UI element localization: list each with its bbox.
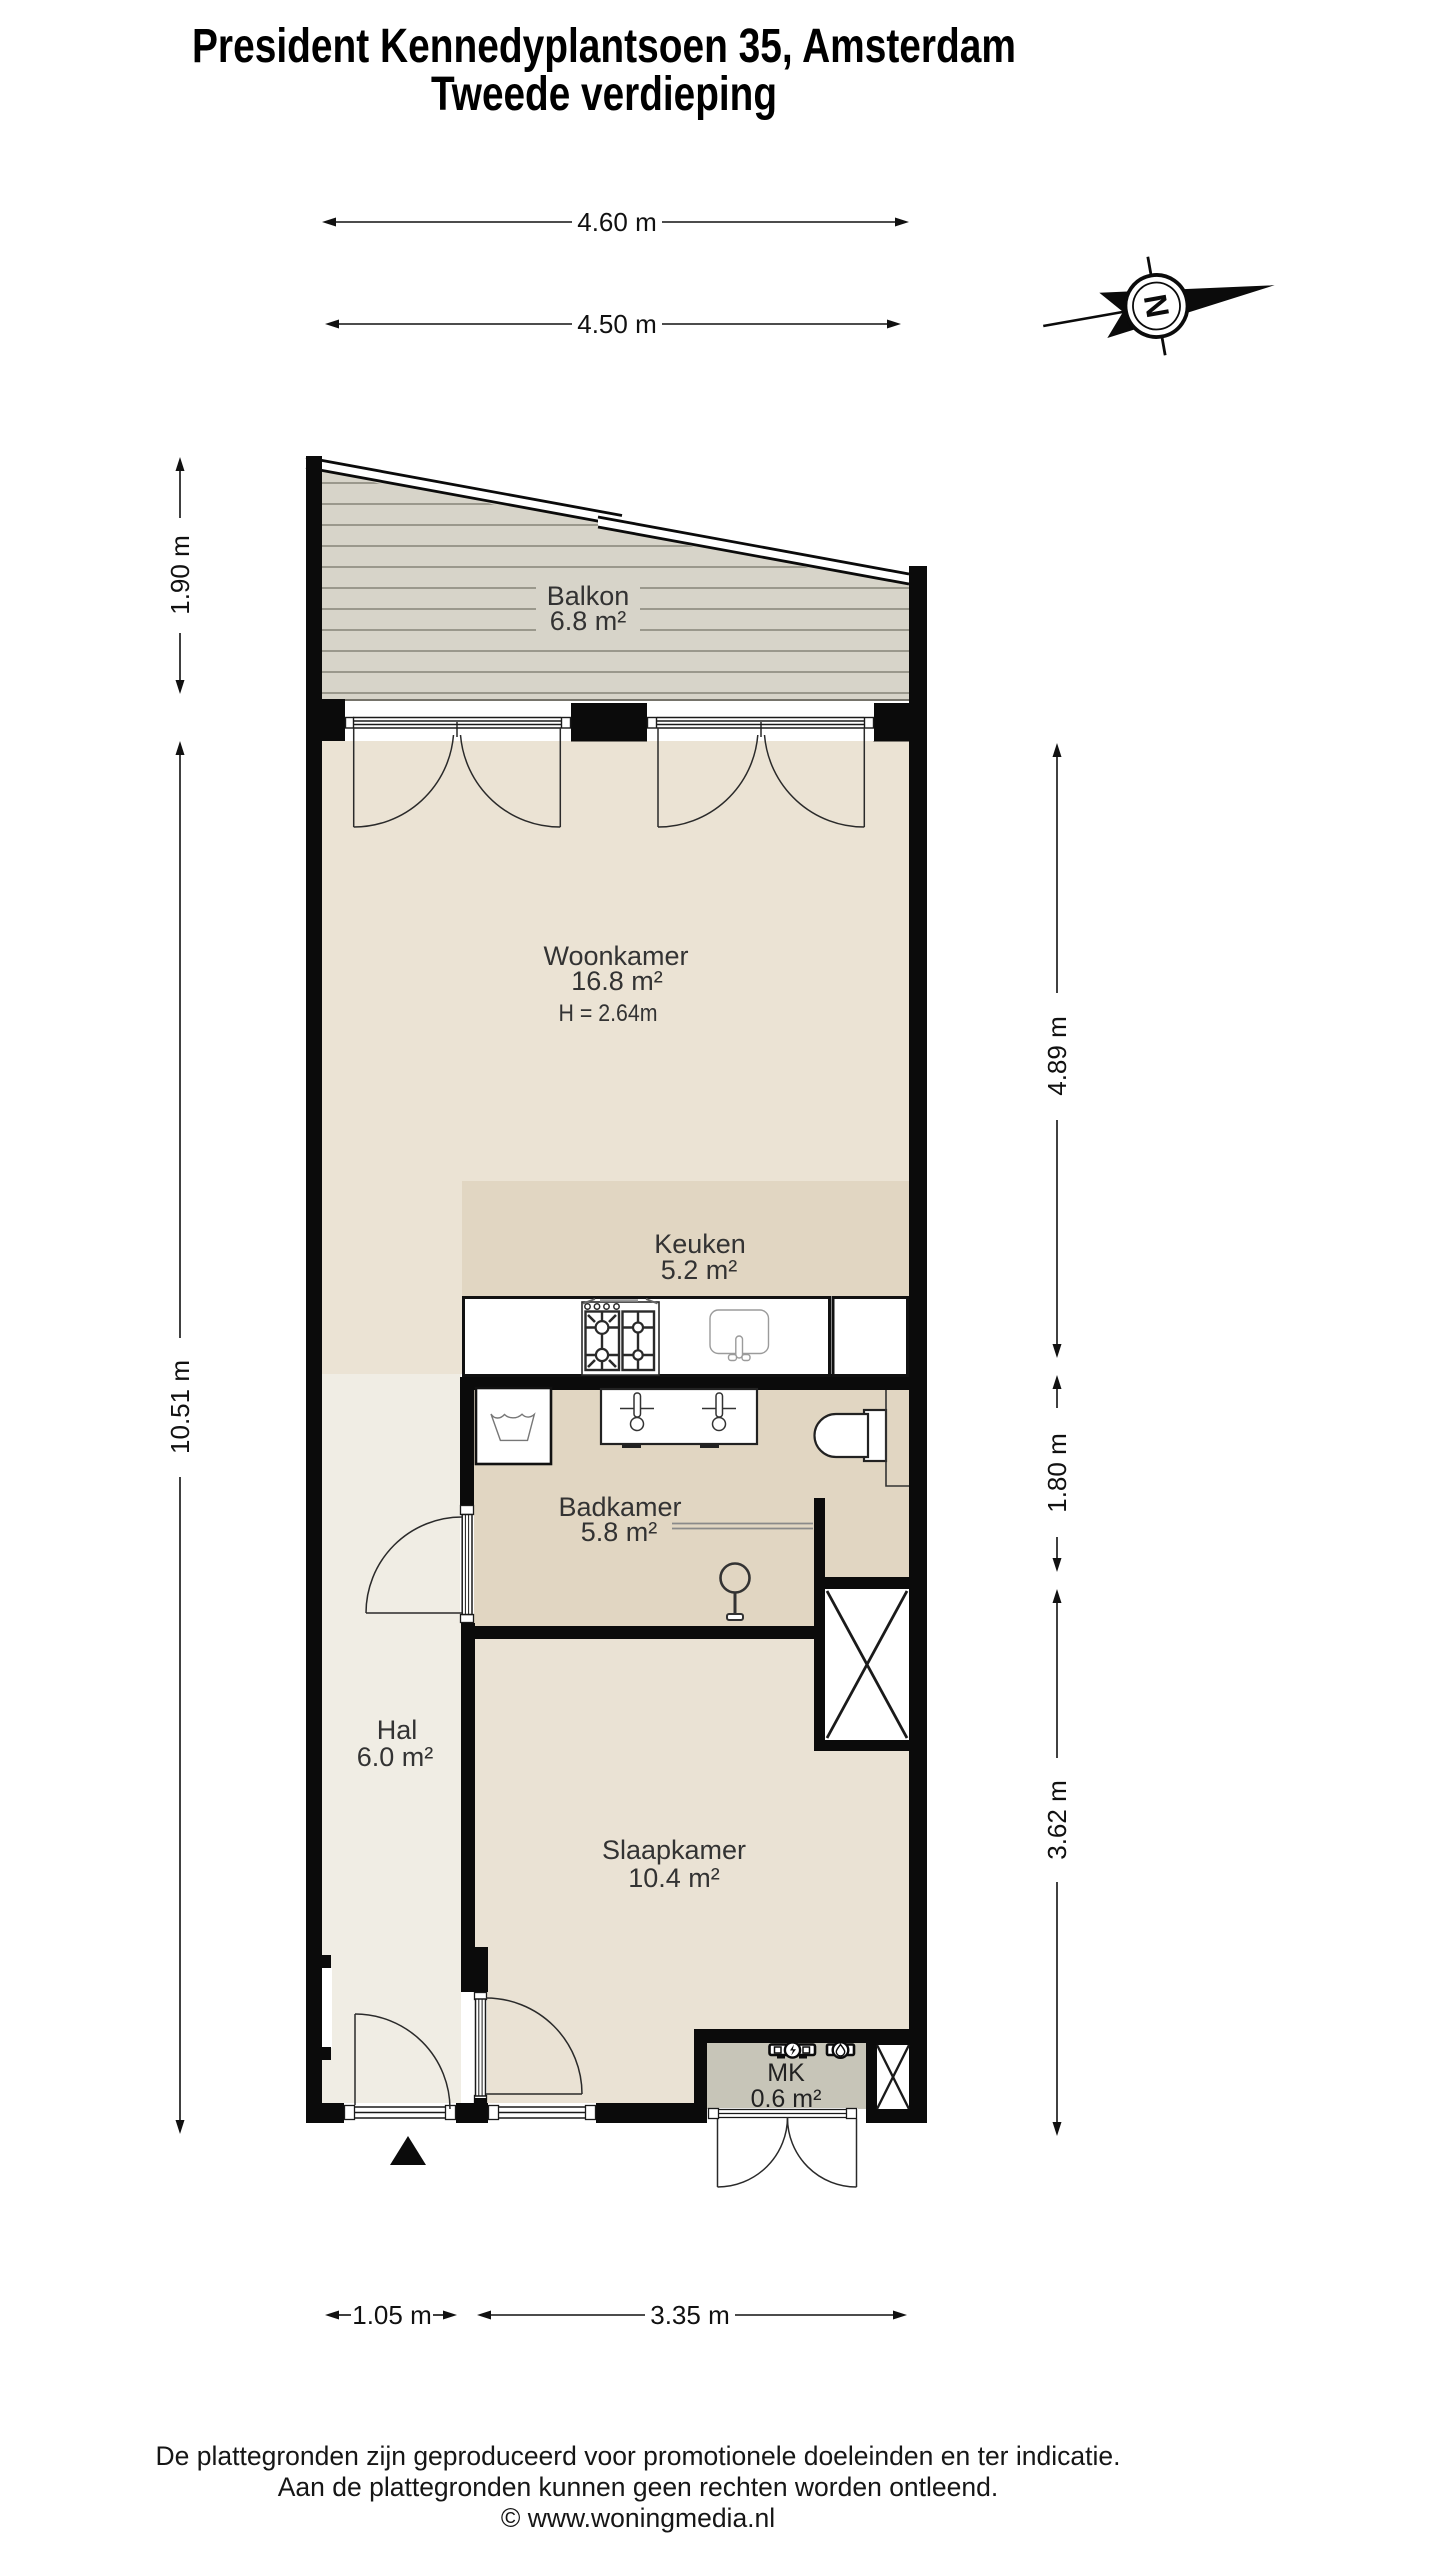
svg-text:3.35 m: 3.35 m	[650, 2300, 730, 2330]
svg-text:16.8 m²: 16.8 m²	[571, 966, 663, 996]
svg-text:1.90 m: 1.90 m	[165, 535, 195, 615]
svg-text:5.2 m²: 5.2 m²	[661, 1255, 738, 1285]
svg-text:4.89 m: 4.89 m	[1042, 1016, 1072, 1096]
svg-text:6.8 m²: 6.8 m²	[550, 606, 627, 636]
svg-text:3.62 m: 3.62 m	[1042, 1780, 1072, 1860]
svg-text:1.80 m: 1.80 m	[1042, 1433, 1072, 1513]
svg-text:0.6 m²: 0.6 m²	[751, 2085, 822, 2113]
svg-text:Aan de plattegronden kunnen ge: Aan de plattegronden kunnen geen rechten…	[278, 2472, 998, 2502]
svg-text:H = 2.64m: H = 2.64m	[559, 1000, 658, 1027]
svg-text:© www.woningmedia.nl: © www.woningmedia.nl	[501, 2503, 775, 2533]
svg-text:4.50 m: 4.50 m	[577, 309, 657, 339]
svg-text:6.0 m²: 6.0 m²	[357, 1742, 434, 1772]
svg-text:Slaapkamer: Slaapkamer	[602, 1835, 746, 1865]
svg-text:4.60 m: 4.60 m	[577, 207, 657, 237]
svg-text:MK: MK	[767, 2059, 805, 2087]
svg-text:De plattegronden zijn geproduc: De plattegronden zijn geproduceerd voor …	[156, 2441, 1121, 2471]
svg-text:5.8 m²: 5.8 m²	[581, 1517, 658, 1547]
svg-text:10.4 m²: 10.4 m²	[628, 1863, 720, 1893]
svg-text:President Kennedyplantsoen 35,: President Kennedyplantsoen 35, Amsterdam	[192, 20, 1016, 73]
svg-text:10.51 m: 10.51 m	[165, 1360, 195, 1454]
svg-text:Tweede verdieping: Tweede verdieping	[431, 68, 777, 121]
svg-text:Hal: Hal	[377, 1715, 418, 1745]
svg-text:1.05 m: 1.05 m	[352, 2300, 432, 2330]
